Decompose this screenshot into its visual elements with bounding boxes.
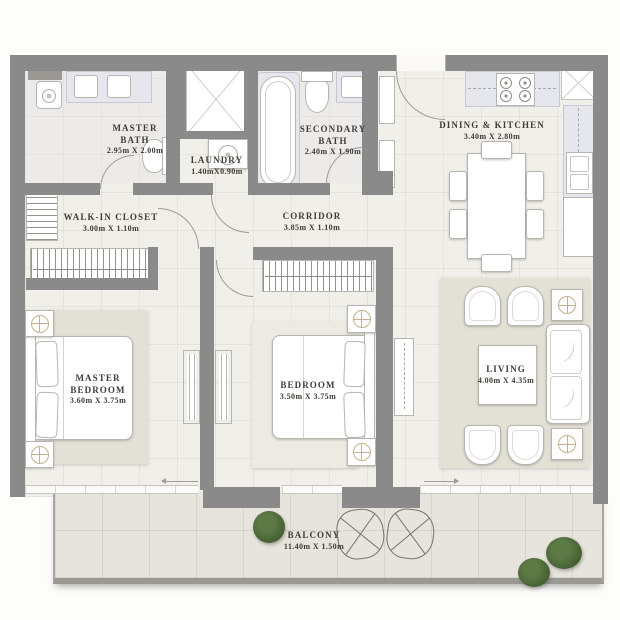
- pillow: [35, 392, 59, 439]
- wc-toilet: [36, 81, 62, 109]
- wall-balcony-stub-left: [203, 487, 280, 508]
- room-dims: 4.00m X 4.35m: [478, 375, 534, 386]
- room-name: MASTER BATH: [99, 123, 171, 146]
- dining-chair: [449, 171, 467, 201]
- room-dims: 2.40m X 1.90m: [305, 147, 361, 158]
- armchair: [464, 425, 501, 465]
- kitchen-upper-cabinet-line: [578, 108, 579, 152]
- label-master-bedroom: MASTER BEDROOM 3.60m X 3.75m: [65, 373, 131, 407]
- room-name: MASTER BEDROOM: [65, 373, 131, 396]
- stove: [496, 73, 535, 106]
- armchair-seat: [512, 291, 539, 321]
- door-slide-arrow: [424, 481, 458, 482]
- room-name: WALK-IN CLOSET: [46, 212, 176, 224]
- console-line: [404, 343, 405, 409]
- wall-laundry-bottom: [180, 183, 213, 195]
- wall-bedroom-top: [253, 247, 376, 260]
- wall-bath-row-east: [133, 183, 180, 195]
- lamp-icon: [353, 310, 371, 328]
- lamp-icon: [558, 435, 576, 453]
- entry-cabinet: [379, 76, 395, 124]
- bathtub: [260, 76, 296, 188]
- headboard: [364, 332, 375, 442]
- wall-shower-right: [244, 71, 258, 137]
- wall-shower-left: [180, 71, 186, 137]
- wc-toilet-bowl-icon: [42, 89, 56, 103]
- duvet-fold-line: [63, 337, 64, 439]
- armchair: [507, 425, 544, 465]
- room-name: CORRIDOR: [262, 211, 362, 223]
- floor-plan: MASTER BATH 2.95m X 2.00m LAUNDRY 1.40mX…: [0, 0, 620, 620]
- room-dims: 3.60m X 3.75m: [70, 396, 126, 407]
- label-laundry: LAUNDRY 1.40mX0.90m: [182, 155, 252, 177]
- bedroom-wardrobe: [262, 260, 374, 292]
- armchair-seat: [512, 430, 539, 460]
- wall-closet-cap: [148, 247, 158, 290]
- nightstand: [347, 438, 376, 466]
- sink-basin: [570, 156, 589, 172]
- wc-cistern: [28, 71, 62, 80]
- room-dims: 1.40mX0.90m: [191, 166, 243, 177]
- living-sliding-door: [420, 485, 593, 494]
- bathtub-inner: [265, 81, 291, 183]
- armchair: [464, 286, 501, 326]
- toilet-icon: [305, 81, 329, 113]
- wall-balcony-stub-right: [342, 487, 420, 508]
- dining-chair: [526, 171, 544, 201]
- wall-bedroom-living: [376, 247, 393, 490]
- wardrobe-panel: [183, 350, 200, 424]
- dining-chair: [449, 209, 467, 239]
- room-name: LAUNDRY: [182, 155, 252, 167]
- plant-icon: [518, 558, 550, 587]
- armchair-seat: [469, 430, 496, 460]
- room-dims: 2.95m X 2.00m: [107, 146, 163, 157]
- room-dims: 3.00m X 1.10m: [83, 223, 139, 234]
- wall-right: [593, 55, 608, 504]
- wall-secbath-corner: [373, 171, 393, 195]
- leaf-motif: [555, 338, 578, 364]
- room-name: SECONDARY BATH: [293, 124, 373, 147]
- sink-icon: [341, 76, 364, 98]
- label-secondary-bath: SECONDARY BATH 2.40m X 1.90m: [293, 124, 373, 158]
- nightstand: [347, 305, 376, 333]
- armchair: [507, 286, 544, 326]
- shower-enclosure: [186, 64, 246, 135]
- lamp-icon: [558, 296, 576, 314]
- wall-shower-bottom: [180, 131, 258, 139]
- room-dims: 3.40m X 2.80m: [464, 131, 520, 142]
- wardrobe-panel: [215, 350, 232, 424]
- wall-closet-bottom: [26, 278, 148, 290]
- wall-bedrooms-divider: [200, 247, 214, 490]
- fridge: [561, 66, 596, 100]
- wall-left: [10, 55, 25, 497]
- label-master-bath: MASTER BATH 2.95m X 2.00m: [99, 123, 171, 157]
- side-table: [551, 428, 583, 460]
- leaf-motif: [555, 384, 578, 410]
- kitchen-cabinet-lower: [563, 197, 595, 257]
- nightstand: [25, 441, 54, 468]
- burner-icon: [519, 90, 531, 102]
- wall-bath-row-west: [25, 183, 100, 195]
- sink-icon: [107, 75, 131, 98]
- bedroom-sliding-door: [282, 485, 342, 494]
- room-dims: 3.50m X 3.75m: [280, 391, 336, 402]
- nightstand: [25, 310, 54, 337]
- burner-icon: [500, 77, 512, 89]
- room-name: BEDROOM: [268, 380, 348, 392]
- closet-rod: [265, 276, 371, 277]
- wall-secbath-bottom: [258, 183, 330, 195]
- sofa-cushion: [550, 330, 582, 374]
- dining-chair: [481, 141, 512, 159]
- sink-icon: [74, 75, 98, 98]
- label-walk-in-closet: WALK-IN CLOSET 3.00m X 1.10m: [46, 212, 176, 234]
- room-name: LIVING: [471, 364, 541, 376]
- entry-door-opening: [396, 55, 446, 71]
- burner-icon: [500, 90, 512, 102]
- armchair-seat: [469, 291, 496, 321]
- label-balcony: BALCONY 11.40m X 1.50m: [279, 530, 349, 552]
- kitchen-sink: [566, 152, 593, 194]
- door-slide-arrow: [162, 481, 198, 482]
- lamp-icon: [353, 443, 371, 461]
- room-dims: 3.85m X 1.10m: [284, 222, 340, 233]
- room-name: DINING & KITCHEN: [427, 120, 557, 132]
- label-bedroom: BEDROOM 3.50m X 3.75m: [268, 380, 348, 402]
- side-table: [551, 289, 583, 321]
- lamp-icon: [31, 446, 49, 464]
- dining-chair: [481, 254, 512, 272]
- headboard: [25, 333, 36, 443]
- master-bedroom-sliding-door: [25, 485, 198, 494]
- sink-basin: [570, 174, 589, 190]
- label-dining-kitchen: DINING & KITCHEN 3.40m X 2.80m: [427, 120, 557, 142]
- burner-icon: [519, 77, 531, 89]
- sofa: [546, 324, 590, 424]
- wall-top: [10, 55, 608, 71]
- lamp-icon: [31, 315, 49, 333]
- tv-console: [394, 338, 414, 416]
- dining-chair: [526, 209, 544, 239]
- pillow: [35, 341, 59, 388]
- sofa-cushion: [550, 376, 582, 420]
- dining-table: [467, 153, 526, 259]
- closet-rod: [33, 269, 147, 270]
- room-name: BALCONY: [279, 530, 349, 542]
- plant-icon: [546, 537, 582, 569]
- label-corridor: CORRIDOR 3.85m X 1.10m: [262, 211, 362, 233]
- room-dims: 11.40m X 1.50m: [284, 541, 344, 552]
- label-living: LIVING 4.00m X 4.35m: [471, 364, 541, 386]
